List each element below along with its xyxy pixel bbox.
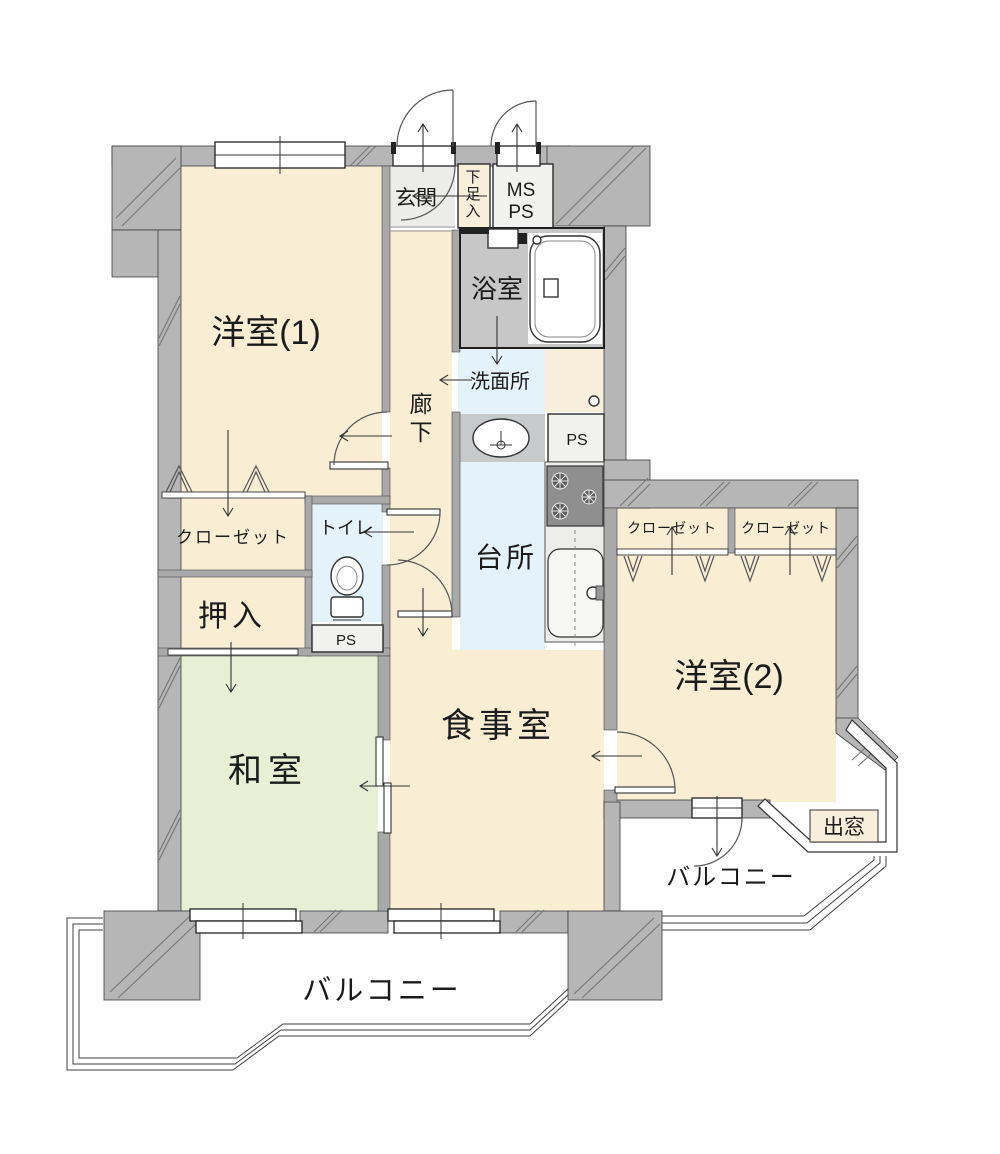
label-closet-right2: クローゼット	[741, 520, 831, 536]
bath-wall-accent	[461, 228, 489, 234]
floor-plan-drawing: 洋室(1) 玄関 下足入 MS PS 浴室 洗面所 PS 台所 廊下 トイレ P…	[0, 0, 1000, 1154]
wall-block-top-right	[547, 146, 650, 226]
wall-pillar-top-left-foot	[112, 230, 165, 277]
label-washitsu: 和室	[228, 752, 308, 790]
washitsu-sliding-panel-1	[376, 737, 383, 786]
label-bath: 浴室	[471, 274, 523, 304]
water-heater-mark	[589, 396, 599, 406]
label-kitchen: 台所	[475, 542, 537, 573]
toilet-tank	[331, 597, 363, 617]
entry-door-swing	[397, 90, 453, 146]
wall-closet-oshiire-divider	[158, 570, 312, 577]
label-ps-laundry: PS	[566, 432, 587, 449]
bath-drain	[533, 236, 541, 244]
wall-top-2	[345, 146, 393, 166]
bath-fitting	[518, 233, 527, 244]
window-washitsu-bottom-b	[196, 921, 302, 933]
wall-pillar-bottom-left	[104, 911, 200, 1000]
yoshitsu1-door-leaf	[330, 462, 388, 469]
label-dining: 食事室	[441, 707, 555, 745]
floor-plan-page: 洋室(1) 玄関 下足入 MS PS 浴室 洗面所 PS 台所 廊下 トイレ P…	[0, 0, 1000, 1154]
oshiire-sliding-track	[168, 649, 298, 655]
faucet-base	[596, 586, 604, 600]
label-balcony-main: バルコニー	[302, 975, 461, 1007]
label-balcony-right: バルコニー	[666, 864, 796, 891]
label-demado: 出窓	[823, 816, 865, 839]
wall-washitsu-dining-lower	[378, 832, 390, 911]
wall-washitsu-dining-upper	[378, 656, 390, 740]
label-closet-right1: クローゼット	[627, 520, 717, 536]
label-closet-left: クローゼット	[176, 528, 290, 547]
yoshitsu2-door-leaf	[615, 787, 675, 793]
demado-label-group: 出窓	[810, 810, 878, 842]
bathtub	[530, 236, 600, 342]
wall-bath-right	[604, 226, 626, 462]
balcony-door-swing	[694, 818, 742, 866]
wall-closet-right-divider	[728, 508, 735, 553]
label-getabako: 下足入	[465, 169, 480, 220]
wall-yoshitsu1-right-lower	[382, 468, 390, 512]
wall-yoshitsu1-right-upper	[382, 166, 390, 412]
wall-corridor-right-upper	[452, 230, 460, 352]
label-genkan: 玄関	[395, 187, 437, 210]
label-ps-toilet: PS	[336, 632, 356, 649]
entry-door-opening	[393, 146, 455, 166]
bath-washbasin	[488, 229, 518, 248]
wall-yoshitsu2-left-upper	[604, 508, 617, 730]
window-dining-bottom-b	[394, 921, 500, 933]
label-toilet: トイレ	[319, 518, 373, 538]
room-dining-floor	[390, 650, 604, 911]
wall-toilet-top	[305, 496, 390, 504]
wall-dining-right	[604, 802, 620, 911]
wall-right	[836, 508, 858, 722]
label-senmenjo: 洗面所	[470, 370, 530, 393]
msps-door-opening	[497, 146, 540, 166]
toilet-bowl	[331, 557, 363, 595]
label-ps-meter: PS	[508, 202, 533, 223]
wall-corridor-right-lower	[452, 412, 460, 617]
label-oshiire: 押入	[198, 600, 266, 633]
label-yoshitsu1: 洋室(1)	[211, 314, 321, 352]
closet-left-track	[162, 492, 305, 498]
msps-door-swing	[491, 101, 536, 146]
toilet-door-leaf	[387, 509, 440, 515]
wall-top-3	[455, 146, 497, 166]
closet-right2-track	[735, 549, 836, 555]
bath-step	[544, 279, 558, 297]
label-ms: MS	[507, 180, 536, 201]
wall-bottom-2	[300, 911, 388, 933]
washitsu-sliding-panel-2	[384, 783, 391, 833]
dining-door-leaf	[398, 611, 452, 617]
label-yoshitsu2: 洋室(2)	[674, 658, 784, 696]
